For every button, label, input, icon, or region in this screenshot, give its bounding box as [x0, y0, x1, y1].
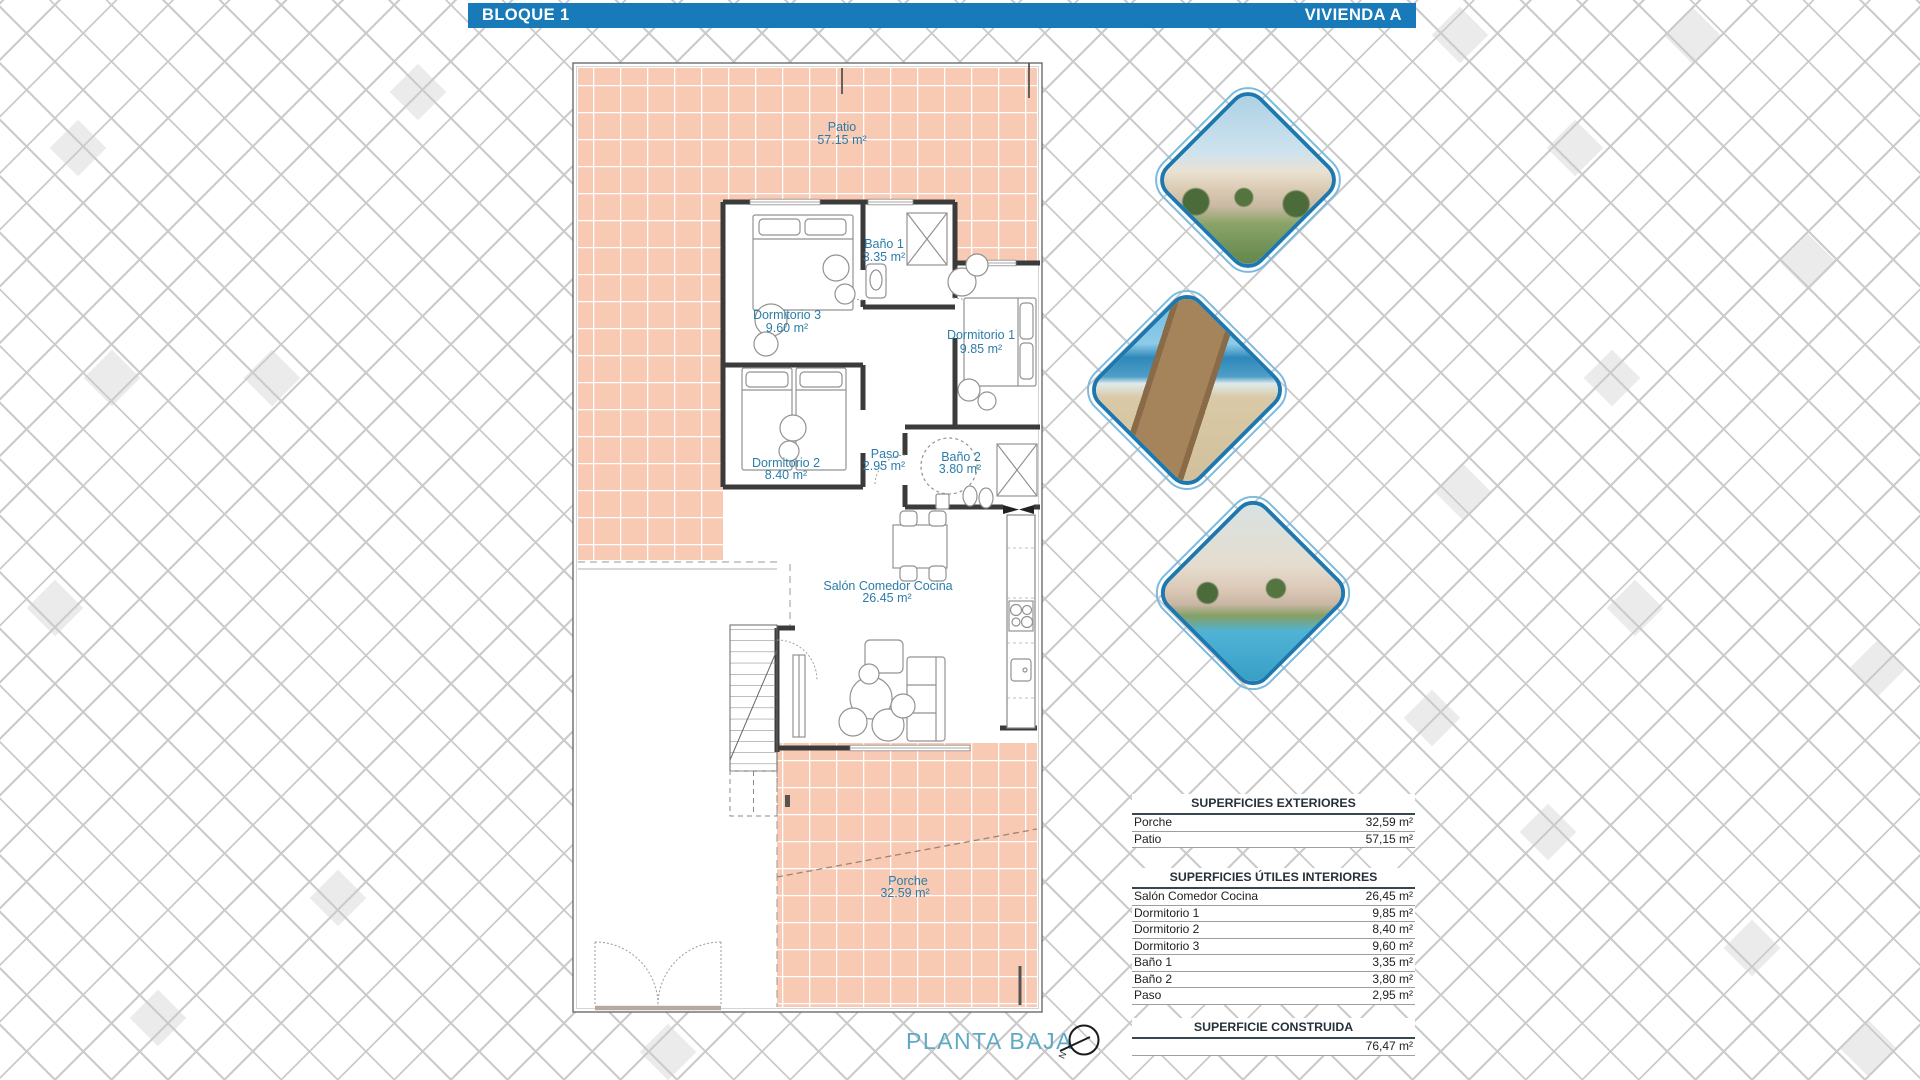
lattice-cell — [1432, 7, 1489, 64]
lattice-cell — [27, 580, 84, 637]
row-label: Salón Comedor Cocina — [1134, 890, 1258, 904]
table-row: Paso 2,95 m² — [1132, 988, 1415, 1005]
lattice-cell — [1850, 640, 1907, 697]
table-row: Dormitorio 1 9,85 m² — [1132, 906, 1415, 923]
lattice-cell — [1435, 464, 1492, 521]
label-bano2-area: 3.80 m² — [939, 462, 981, 476]
row-label: Porche — [1134, 816, 1172, 830]
table-row: Dormitorio 3 9,60 m² — [1132, 939, 1415, 956]
north-compass-icon: N — [1056, 1020, 1104, 1062]
lattice-cell — [1664, 7, 1721, 64]
row-value: 8,40 m² — [1372, 923, 1413, 937]
table-superficie-construida: SUPERFICIE CONSTRUIDA 76,47 m² — [1132, 1018, 1415, 1056]
label-patio-area: 57.15 m² — [817, 133, 866, 147]
label-porche-area: 32.59 m² — [880, 886, 929, 900]
header-bar: BLOQUE 1 VIVIENDA A — [468, 3, 1416, 28]
compass-north-label: N — [1057, 1050, 1069, 1060]
dwelling-title: VIVIENDA A — [1305, 6, 1402, 25]
lattice-cell — [1404, 690, 1461, 747]
table-row: 76,47 m² — [1132, 1039, 1415, 1056]
lattice-cell — [390, 64, 447, 121]
lattice-cell — [1724, 920, 1781, 977]
row-label: Dormitorio 3 — [1134, 940, 1199, 954]
label-bano1-name: Baño 1 — [864, 237, 904, 251]
label-dorm3-area: 9.60 m² — [766, 321, 808, 335]
row-value: 32,59 m² — [1366, 816, 1413, 830]
block-title: BLOQUE 1 — [482, 6, 570, 25]
lattice-cell — [1607, 580, 1664, 637]
row-label: Dormitorio 1 — [1134, 907, 1199, 921]
row-label: Baño 2 — [1134, 973, 1172, 987]
row-label: Baño 1 — [1134, 956, 1172, 970]
plan-sheet: BLOQUE 1 VIVIENDA A — [0, 0, 1920, 1080]
label-dorm1-area: 9.85 m² — [960, 342, 1002, 356]
table-title-construida: SUPERFICIE CONSTRUIDA — [1132, 1018, 1415, 1039]
table-row: Salón Comedor Cocina 26,45 m² — [1132, 889, 1415, 906]
table-row: Porche 32,59 m² — [1132, 815, 1415, 832]
lattice-cell — [84, 350, 141, 407]
row-value: 26,45 m² — [1366, 890, 1413, 904]
row-label: Patio — [1134, 833, 1161, 847]
table-superficies-utiles-interiores: SUPERFICIES ÚTILES INTERIORES Salón Come… — [1132, 868, 1415, 1005]
lattice-cell — [244, 350, 301, 407]
lattice-cell — [1780, 234, 1837, 291]
row-value: 3,35 m² — [1372, 956, 1413, 970]
lattice-cell — [310, 870, 367, 927]
lattice-cell — [1584, 350, 1641, 407]
row-value: 76,47 m² — [1366, 1040, 1413, 1054]
row-value: 9,85 m² — [1372, 907, 1413, 921]
row-value: 2,95 m² — [1372, 989, 1413, 1003]
label-salon-area: 26.45 m² — [862, 591, 911, 605]
label-dorm1-name: Dormitorio 1 — [947, 328, 1015, 342]
row-value: 57,15 m² — [1366, 833, 1413, 847]
lattice-cell — [640, 1024, 697, 1080]
table-title-exteriores: SUPERFICIES EXTERIORES — [1132, 794, 1415, 815]
row-value: 3,80 m² — [1372, 973, 1413, 987]
label-bano1-area: 3.35 m² — [863, 250, 905, 264]
row-label: Paso — [1134, 989, 1161, 1003]
table-row: Dormitorio 2 8,40 m² — [1132, 922, 1415, 939]
lattice-cell — [1547, 120, 1604, 177]
table-row: Patio 57,15 m² — [1132, 832, 1415, 849]
label-dorm2-area: 8.40 m² — [765, 468, 807, 482]
table-row: Baño 2 3,80 m² — [1132, 972, 1415, 989]
plan-title: PLANTA BAJA — [906, 1028, 1073, 1055]
label-paso-area: 2.95 m² — [863, 459, 905, 473]
lattice-cell — [1840, 1020, 1897, 1077]
label-patio-name: Patio — [828, 120, 857, 134]
lattice-cell — [130, 990, 187, 1047]
lattice-cell — [50, 120, 107, 177]
floor-plan: Patio 57.15 m² Baño 1 3.35 m² Dormitorio… — [566, 58, 1048, 1016]
row-label: Dormitorio 2 — [1134, 923, 1199, 937]
table-superficies-exteriores: SUPERFICIES EXTERIORES Porche 32,59 m² P… — [1132, 794, 1415, 848]
table-row: Baño 1 3,35 m² — [1132, 955, 1415, 972]
lattice-cell — [1520, 804, 1577, 861]
row-value: 9,60 m² — [1372, 940, 1413, 954]
label-dorm3-name: Dormitorio 3 — [753, 308, 821, 322]
table-title-interiores: SUPERFICIES ÚTILES INTERIORES — [1132, 868, 1415, 889]
